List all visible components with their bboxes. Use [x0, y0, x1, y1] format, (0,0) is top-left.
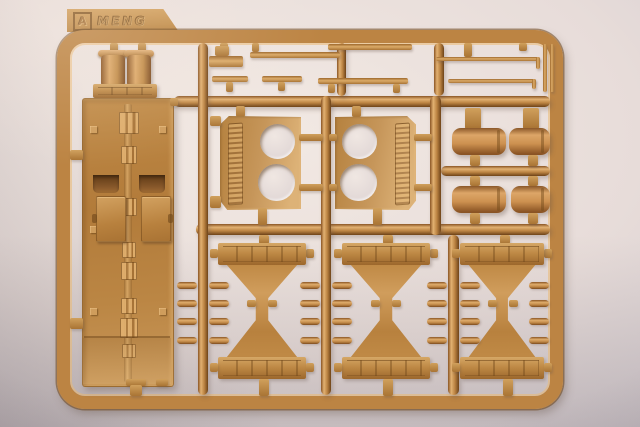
thin-rod	[550, 44, 554, 92]
sprue-letter: A	[78, 15, 87, 28]
frame-top-beam	[342, 243, 430, 265]
peg-part	[332, 300, 352, 307]
deck-detail	[121, 262, 137, 280]
fan-opening	[258, 164, 295, 201]
gate	[470, 176, 480, 186]
deck-detail	[121, 146, 137, 164]
frame-bottom-beam	[218, 357, 306, 379]
deck-latch	[159, 126, 166, 133]
gate	[226, 82, 233, 92]
peg-part	[427, 282, 447, 289]
gate	[528, 176, 538, 186]
frame-waist-clip	[509, 300, 518, 307]
peg-part	[300, 318, 320, 325]
fuel-drum	[509, 128, 550, 155]
peg-part	[177, 318, 197, 325]
gate	[383, 379, 393, 396]
peg-part	[177, 282, 197, 289]
frame-waist-clip	[247, 300, 256, 307]
sprue-letter-badge: A	[73, 12, 92, 31]
gate	[210, 249, 218, 258]
hatch-hinge	[92, 214, 97, 223]
sprue-runner	[430, 96, 441, 235]
peg-part	[177, 337, 197, 344]
gate	[130, 385, 142, 396]
deck-detail	[122, 242, 136, 258]
gate	[523, 108, 539, 129]
deck-latch	[90, 126, 97, 133]
gate	[464, 43, 472, 57]
frame-top-beam	[460, 243, 544, 265]
peg-part	[529, 318, 549, 325]
gate	[544, 363, 552, 372]
gate	[70, 150, 83, 160]
gate	[299, 134, 323, 141]
gate	[373, 208, 382, 225]
gate	[306, 249, 314, 258]
thin-rod	[448, 79, 536, 83]
gate	[430, 363, 438, 372]
fuel-drum	[511, 186, 550, 213]
sprue-runner	[337, 43, 346, 96]
fan-opening	[342, 124, 377, 159]
peg-part	[209, 300, 229, 307]
frame-waist-clip	[371, 300, 380, 307]
gate	[414, 184, 432, 191]
gate	[414, 134, 432, 141]
peg-part	[529, 282, 549, 289]
fan-plate	[220, 116, 301, 210]
peg-part	[427, 318, 447, 325]
peg-part	[529, 337, 549, 344]
fan-opening	[260, 124, 295, 159]
gate	[465, 108, 481, 129]
gate	[210, 196, 221, 208]
drum-end-cap	[541, 188, 544, 211]
peg-part	[332, 318, 352, 325]
fuel-drum	[452, 128, 506, 155]
gate	[334, 363, 342, 372]
exhaust-stack	[101, 55, 125, 87]
deck-latch	[159, 308, 166, 315]
gate	[170, 98, 178, 106]
gate	[503, 379, 513, 396]
gate	[236, 106, 245, 117]
peg-part	[300, 337, 320, 344]
gate	[210, 363, 218, 372]
frame-bottom-beam	[342, 357, 430, 379]
gate	[210, 116, 221, 126]
peg-part	[529, 300, 549, 307]
peg-part	[209, 337, 229, 344]
photo-model-sprue: A MENG	[0, 0, 640, 427]
sprue-runner	[198, 43, 208, 395]
peg-part	[460, 300, 480, 307]
stowage-bin	[139, 175, 165, 193]
peg-part	[177, 300, 197, 307]
peg-part	[209, 282, 229, 289]
peg-part	[332, 337, 352, 344]
sprue-runner	[174, 96, 550, 107]
peg-part	[460, 337, 480, 344]
brand-logo: MENG	[96, 14, 148, 28]
gate	[470, 213, 480, 224]
peg-part	[460, 318, 480, 325]
gate	[258, 208, 267, 225]
small-part-clip	[215, 46, 229, 56]
small-part-bar	[328, 44, 412, 50]
small-part-bar	[250, 52, 340, 58]
gate	[470, 155, 480, 166]
sprue-runner	[441, 166, 550, 176]
frame-waist-clip	[392, 300, 401, 307]
thin-rod	[536, 57, 540, 69]
fan-opening	[340, 164, 377, 201]
deck-lower-panel	[83, 338, 171, 384]
thin-rod	[532, 79, 536, 89]
peg-part	[460, 282, 480, 289]
gate	[328, 84, 335, 93]
gate	[252, 43, 259, 52]
small-part-bracket	[209, 56, 243, 67]
frame-waist-clip	[268, 300, 277, 307]
peg-part	[300, 300, 320, 307]
gate	[352, 106, 361, 117]
frame-top-beam	[218, 243, 306, 265]
gate	[452, 249, 460, 258]
exhaust-stack	[127, 55, 151, 87]
gate	[393, 84, 400, 93]
gate	[278, 82, 285, 91]
peg-part	[332, 282, 352, 289]
peg-part	[427, 300, 447, 307]
gate	[528, 213, 538, 224]
gate	[306, 363, 314, 372]
gate	[430, 249, 438, 258]
plate-louver	[228, 122, 243, 205]
deck-latch	[90, 308, 97, 315]
gate	[519, 43, 527, 51]
peg-part	[209, 318, 229, 325]
drum-end-cap	[541, 130, 544, 153]
frame-bottom-beam	[460, 357, 544, 379]
peg-part	[427, 337, 447, 344]
hatch-hinge	[168, 214, 173, 223]
gate	[70, 318, 83, 329]
gate	[544, 249, 552, 258]
stowage-bin	[93, 175, 119, 193]
gate	[259, 379, 269, 396]
drum-end-cap	[497, 188, 500, 211]
drum-end-cap	[497, 130, 500, 153]
fan-plate	[335, 116, 416, 210]
sprue-id-tag: A MENG	[67, 9, 179, 32]
gate	[452, 363, 460, 372]
stack-base	[93, 84, 157, 98]
deck-detail	[120, 318, 138, 338]
fuel-drum	[452, 186, 506, 213]
gate	[528, 155, 538, 166]
sprue-runner	[434, 43, 444, 96]
plate-louver	[395, 122, 410, 205]
hatch-panel	[141, 196, 171, 242]
hatch-panel	[96, 196, 126, 242]
gate	[329, 184, 337, 191]
gate	[329, 134, 337, 141]
thin-rod	[543, 44, 547, 92]
gate	[156, 379, 168, 386]
gate	[334, 249, 342, 258]
gate	[299, 184, 323, 191]
thin-rod	[436, 57, 540, 61]
deck-detail	[119, 112, 139, 134]
frame-waist-clip	[488, 300, 497, 307]
peg-part	[300, 282, 320, 289]
sprue-runner	[196, 224, 550, 235]
deck-detail	[121, 298, 137, 314]
